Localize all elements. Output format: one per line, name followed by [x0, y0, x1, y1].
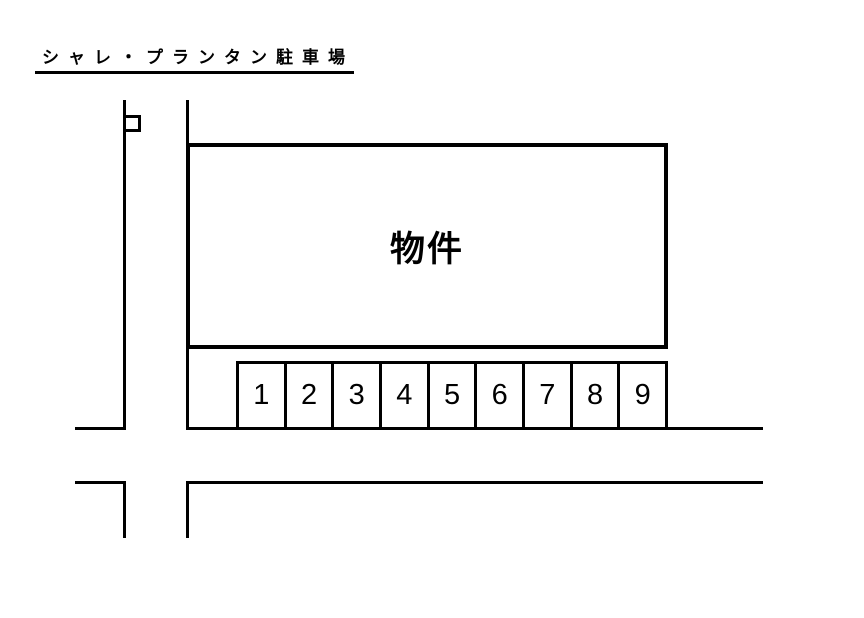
road-edge-bottom-right-segment: [186, 481, 763, 484]
building-outline: 物件: [186, 143, 668, 349]
parking-space: 3: [331, 361, 382, 430]
parking-space: 7: [522, 361, 573, 430]
diagram-title: シャレ・プランタン駐車場: [35, 48, 354, 74]
parking-space: 8: [570, 361, 621, 430]
road-edge-bottom-left-segment: [75, 481, 126, 484]
parking-space: 4: [379, 361, 430, 430]
road-edge-left-upper: [123, 100, 126, 430]
parking-space: 9: [617, 361, 668, 430]
building-label: 物件: [390, 221, 464, 272]
parking-space: 2: [284, 361, 335, 430]
road-edge-main-lower: [186, 481, 189, 538]
parking-spaces-row: 1 2 3 4 5 6 7 8 9: [236, 361, 668, 430]
parking-space: 5: [427, 361, 478, 430]
parking-space: 6: [474, 361, 525, 430]
parking-space: 1: [236, 361, 287, 430]
small-square-marker: [123, 115, 141, 132]
road-edge-top-left-segment: [75, 427, 126, 430]
parking-diagram-page: シャレ・プランタン駐車場 物件 1 2 3 4 5 6 7 8 9: [0, 0, 864, 618]
road-edge-left-lower: [123, 481, 126, 538]
